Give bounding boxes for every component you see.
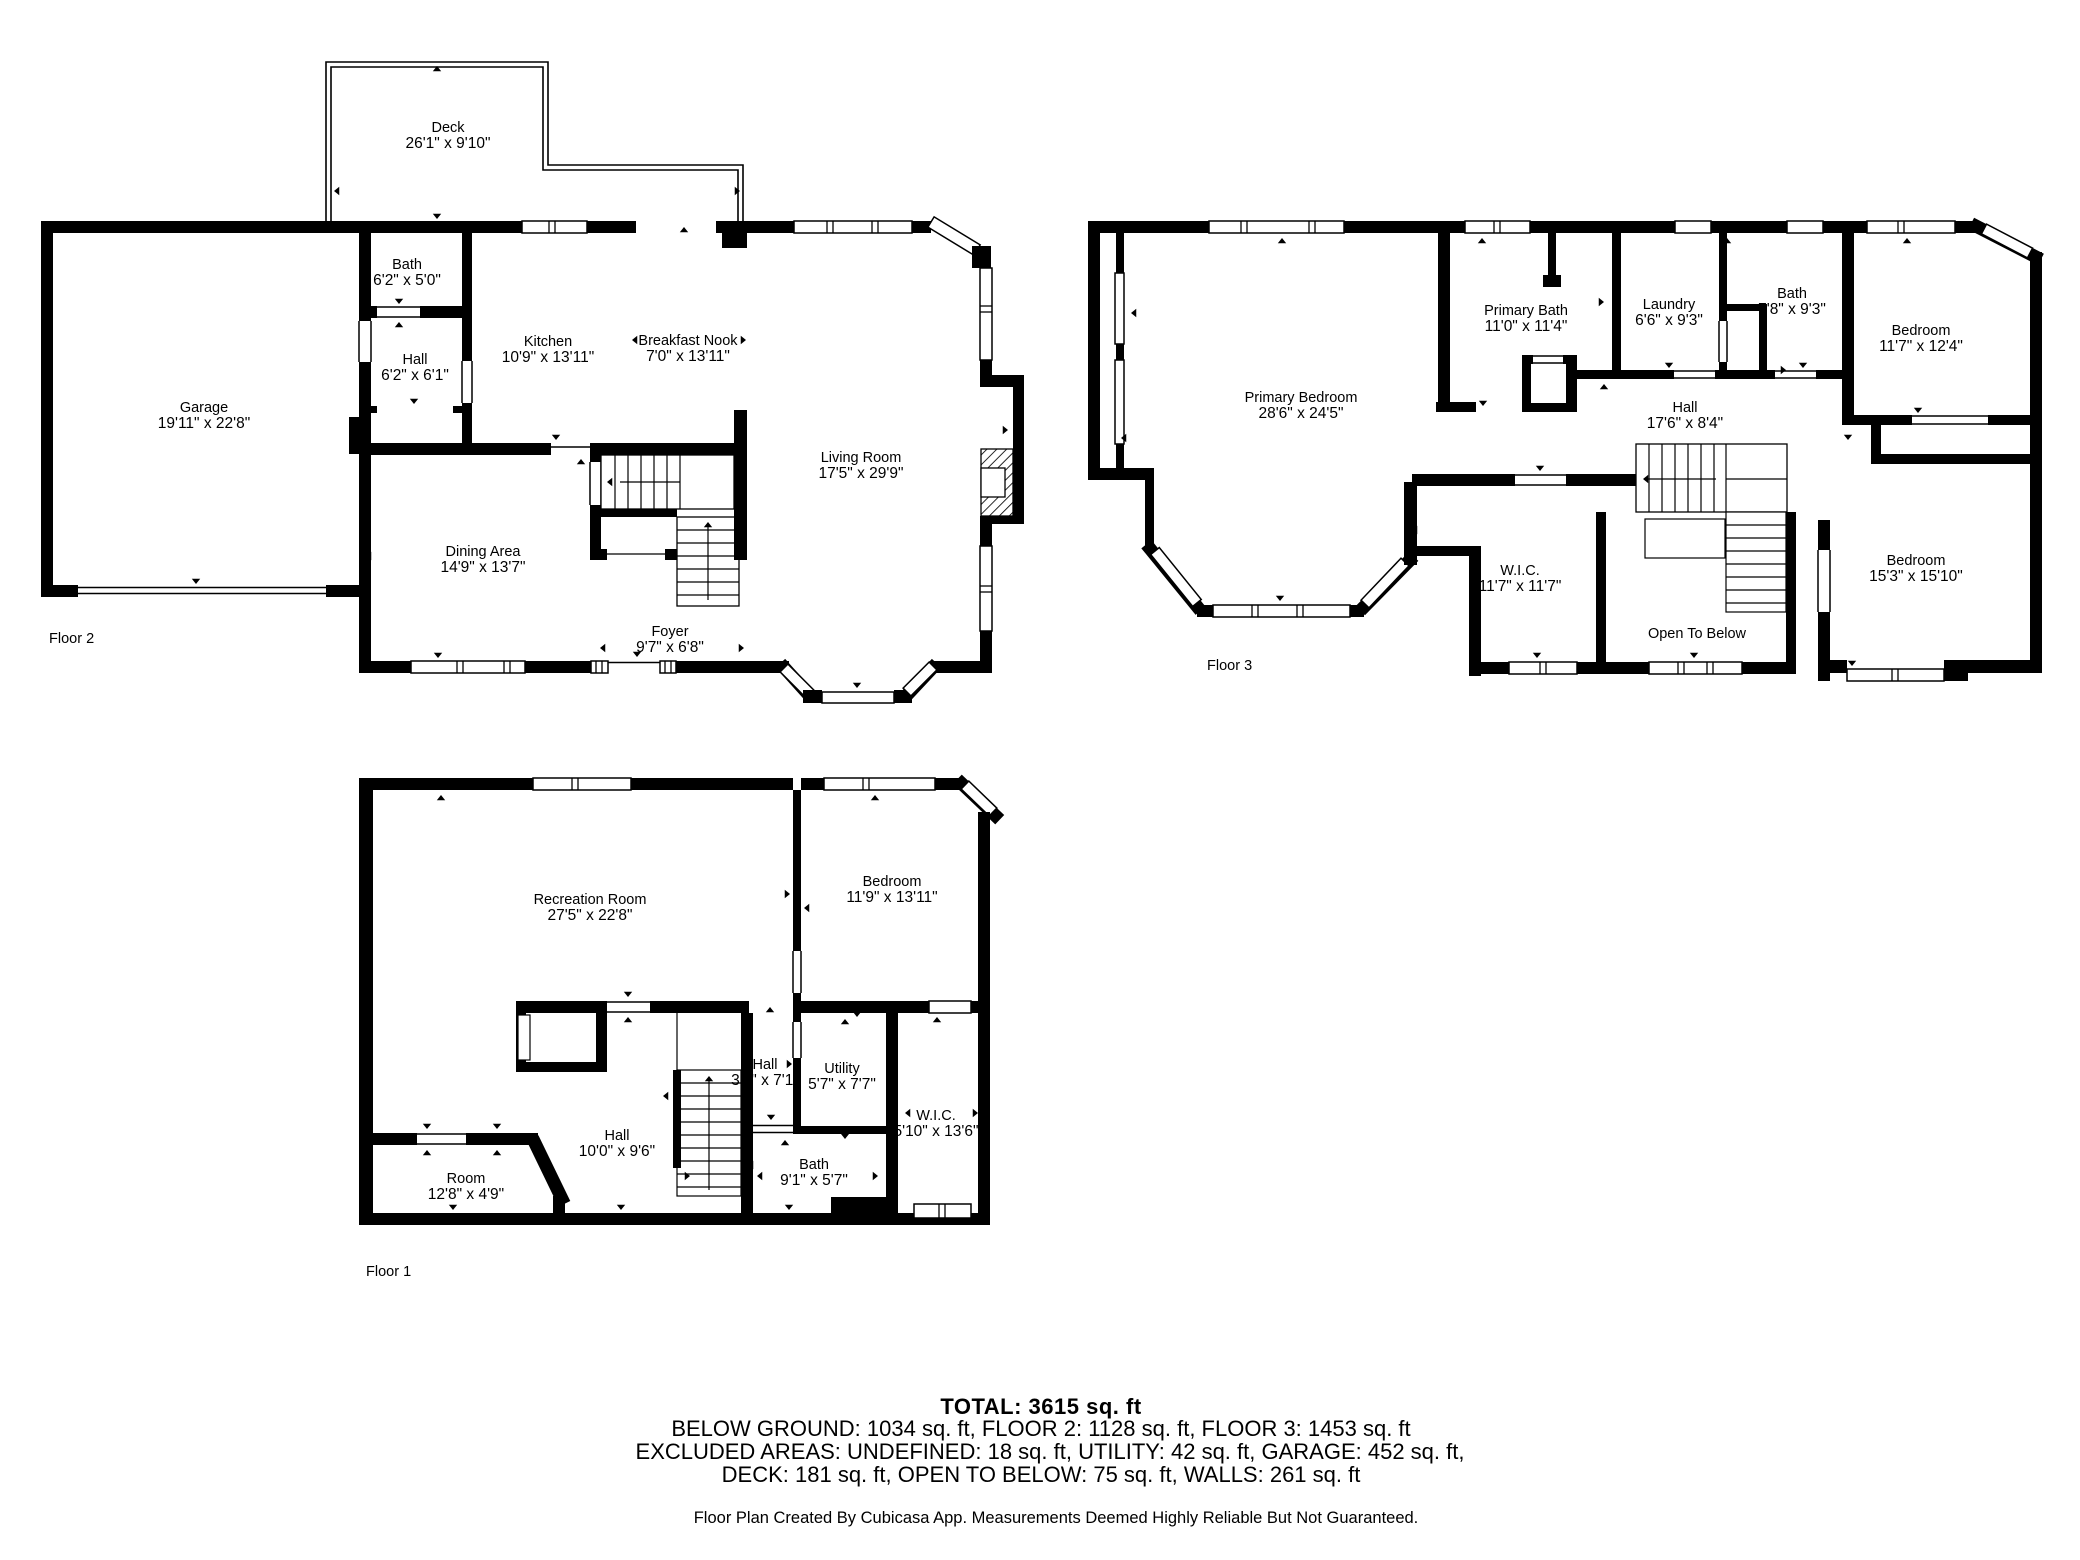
svg-text:Hall: Hall <box>403 352 428 368</box>
svg-text:Laundry: Laundry <box>1643 297 1696 313</box>
svg-text:10'9" x 13'11": 10'9" x 13'11" <box>502 349 594 366</box>
svg-text:Bath: Bath <box>392 257 422 273</box>
svg-text:5'10" x 13'6": 5'10" x 13'6" <box>893 1123 978 1140</box>
svg-text:Primary Bath: Primary Bath <box>1484 303 1568 319</box>
svg-text:Hall: Hall <box>1673 400 1698 416</box>
svg-text:17'5" x 29'9": 17'5" x 29'9" <box>818 465 903 482</box>
svg-text:5'7" x 7'7": 5'7" x 7'7" <box>808 1076 876 1093</box>
svg-text:W.I.C.: W.I.C. <box>916 1108 955 1124</box>
svg-text:Bedroom: Bedroom <box>1892 323 1951 339</box>
svg-text:DECK: 181 sq. ft, OPEN TO BELO: DECK: 181 sq. ft, OPEN TO BELOW: 75 sq. … <box>722 1462 1361 1487</box>
svg-text:Floor 2: Floor 2 <box>49 631 94 647</box>
svg-text:9'1" x 5'7": 9'1" x 5'7" <box>780 1172 848 1189</box>
svg-text:11'7" x 11'7": 11'7" x 11'7" <box>1479 578 1562 595</box>
svg-text:Utility: Utility <box>824 1061 860 1077</box>
svg-text:19'11" x 22'8": 19'11" x 22'8" <box>158 415 250 432</box>
svg-text:Garage: Garage <box>180 400 228 416</box>
svg-text:7'0" x 13'11": 7'0" x 13'11" <box>646 348 730 365</box>
svg-text:Dining Area: Dining Area <box>446 544 522 560</box>
svg-text:Hall: Hall <box>753 1057 778 1073</box>
svg-text:11'7" x 12'4": 11'7" x 12'4" <box>1879 338 1963 355</box>
svg-text:9'7" x 6'8": 9'7" x 6'8" <box>636 639 704 656</box>
svg-text:Deck: Deck <box>431 120 465 136</box>
svg-text:6'2" x 6'1": 6'2" x 6'1" <box>381 367 449 384</box>
svg-text:Floor 1: Floor 1 <box>366 1264 411 1280</box>
svg-text:Living Room: Living Room <box>821 450 902 466</box>
svg-text:Breakfast Nook: Breakfast Nook <box>638 333 738 349</box>
svg-text:Kitchen: Kitchen <box>524 334 572 350</box>
svg-text:7'8" x 9'3": 7'8" x 9'3" <box>1758 301 1826 318</box>
svg-text:17'6" x 8'4": 17'6" x 8'4" <box>1647 415 1723 432</box>
svg-text:Open To Below: Open To Below <box>1648 626 1747 642</box>
svg-text:6'6" x 9'3": 6'6" x 9'3" <box>1635 312 1703 329</box>
svg-text:Bedroom: Bedroom <box>863 874 922 890</box>
svg-text:W.I.C.: W.I.C. <box>1500 563 1539 579</box>
svg-text:6'2" x 5'0": 6'2" x 5'0" <box>373 272 441 289</box>
svg-text:Bath: Bath <box>799 1157 829 1173</box>
svg-text:Foyer: Foyer <box>651 624 688 640</box>
svg-text:Bath: Bath <box>1777 286 1807 302</box>
svg-text:27'5" x 22'8": 27'5" x 22'8" <box>547 907 632 924</box>
svg-text:Floor Plan Created By Cubicasa: Floor Plan Created By Cubicasa App. Meas… <box>694 1509 1419 1527</box>
svg-text:Primary Bedroom: Primary Bedroom <box>1245 390 1358 406</box>
svg-text:Bedroom: Bedroom <box>1887 553 1946 569</box>
svg-text:11'9" x 13'11": 11'9" x 13'11" <box>846 889 937 906</box>
svg-text:15'3" x 15'10": 15'3" x 15'10" <box>1869 568 1963 585</box>
svg-text:28'6" x 24'5": 28'6" x 24'5" <box>1258 405 1343 422</box>
svg-text:Recreation Room: Recreation Room <box>534 892 647 908</box>
svg-text:EXCLUDED AREAS: UNDEFINED: 18: EXCLUDED AREAS: UNDEFINED: 18 sq. ft, UT… <box>636 1439 1465 1464</box>
svg-text:Room: Room <box>447 1171 486 1187</box>
svg-text:Hall: Hall <box>605 1128 630 1144</box>
svg-text:10'0" x 9'6": 10'0" x 9'6" <box>579 1143 655 1160</box>
svg-text:12'8" x 4'9": 12'8" x 4'9" <box>428 1186 504 1203</box>
svg-text:11'0" x 11'4": 11'0" x 11'4" <box>1485 318 1568 335</box>
svg-text:14'9" x 13'7": 14'9" x 13'7" <box>440 559 525 576</box>
svg-text:Floor 3: Floor 3 <box>1207 658 1252 674</box>
svg-text:26'1" x 9'10": 26'1" x 9'10" <box>405 135 490 152</box>
svg-text:3'1" x 7'1": 3'1" x 7'1" <box>731 1072 799 1089</box>
svg-text:BELOW GROUND: 1034 sq. ft, FLO: BELOW GROUND: 1034 sq. ft, FLOOR 2: 1128… <box>671 1416 1410 1441</box>
